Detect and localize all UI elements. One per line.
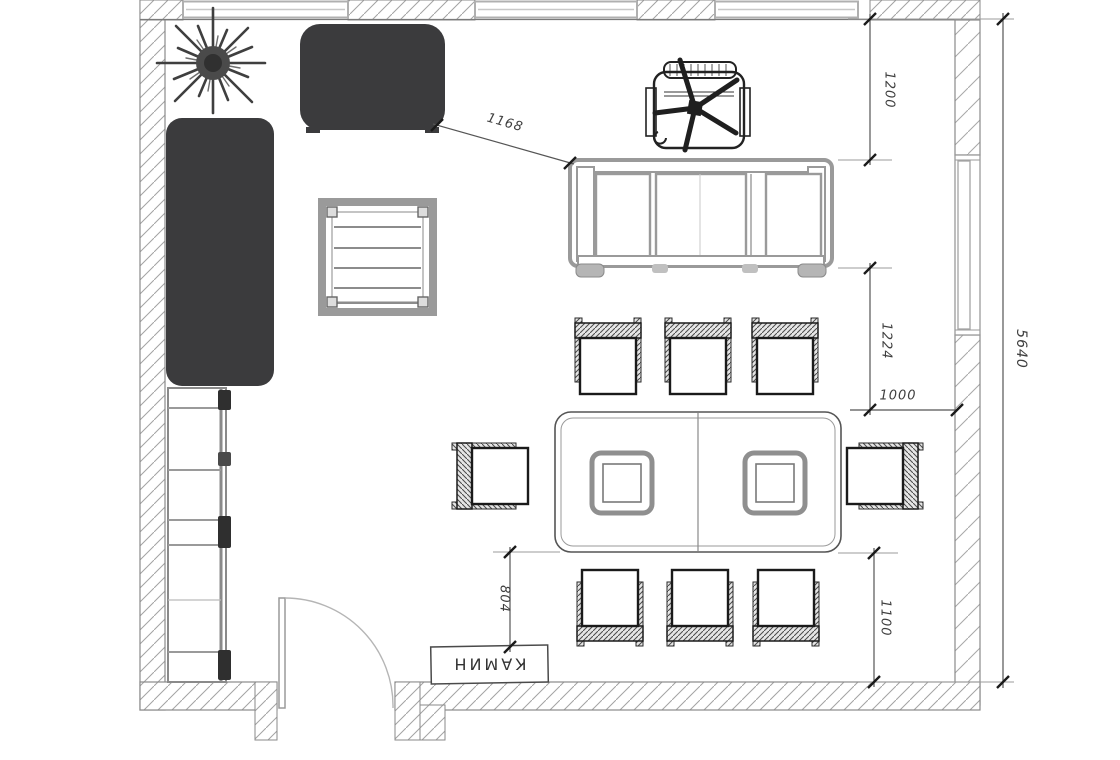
chair-top-1	[575, 318, 641, 394]
chair-bottom-2	[667, 570, 733, 646]
chair-bottom-1	[577, 570, 643, 646]
chair-top-2	[665, 318, 731, 394]
dim-label-1100: 1100	[878, 599, 893, 636]
chair-bottom-3	[753, 570, 819, 646]
wall-top	[140, 0, 980, 20]
armchair-dark	[300, 24, 445, 133]
dining-table	[555, 412, 841, 552]
door	[279, 598, 393, 708]
chair-top-3	[752, 318, 818, 394]
door-swing-arc	[285, 598, 393, 708]
chair-left-end	[452, 443, 528, 509]
floor-plan-drawing	[0, 0, 1120, 760]
window-top-1	[183, 2, 348, 18]
sofa-dark-left	[166, 118, 274, 386]
sofa-gray	[570, 160, 832, 277]
floor-plan-canvas: 1168 1200 1224 1000 5640 804 1100 КАМИН	[0, 0, 1120, 760]
window-right	[955, 155, 980, 335]
dim-label-1200: 1200	[882, 71, 897, 108]
dim-label-804: 804	[497, 585, 512, 613]
chair-right-end	[847, 443, 923, 509]
window-top-3	[715, 2, 858, 18]
potted-plant	[157, 8, 265, 113]
dim-label-5640: 5640	[1013, 329, 1029, 369]
coffee-table-slatted	[322, 202, 433, 312]
door-leaf	[279, 598, 285, 708]
fireplace-label: КАМИН	[451, 655, 526, 674]
wall-left	[140, 0, 165, 710]
window-top-2	[475, 2, 637, 18]
wall-right	[955, 20, 980, 705]
ceiling-fan-armchair	[646, 60, 750, 150]
cabinet-left	[168, 388, 231, 682]
dim-label-1224: 1224	[879, 322, 894, 359]
dim-label-1000: 1000	[879, 389, 916, 404]
wall-bottom	[140, 682, 980, 740]
